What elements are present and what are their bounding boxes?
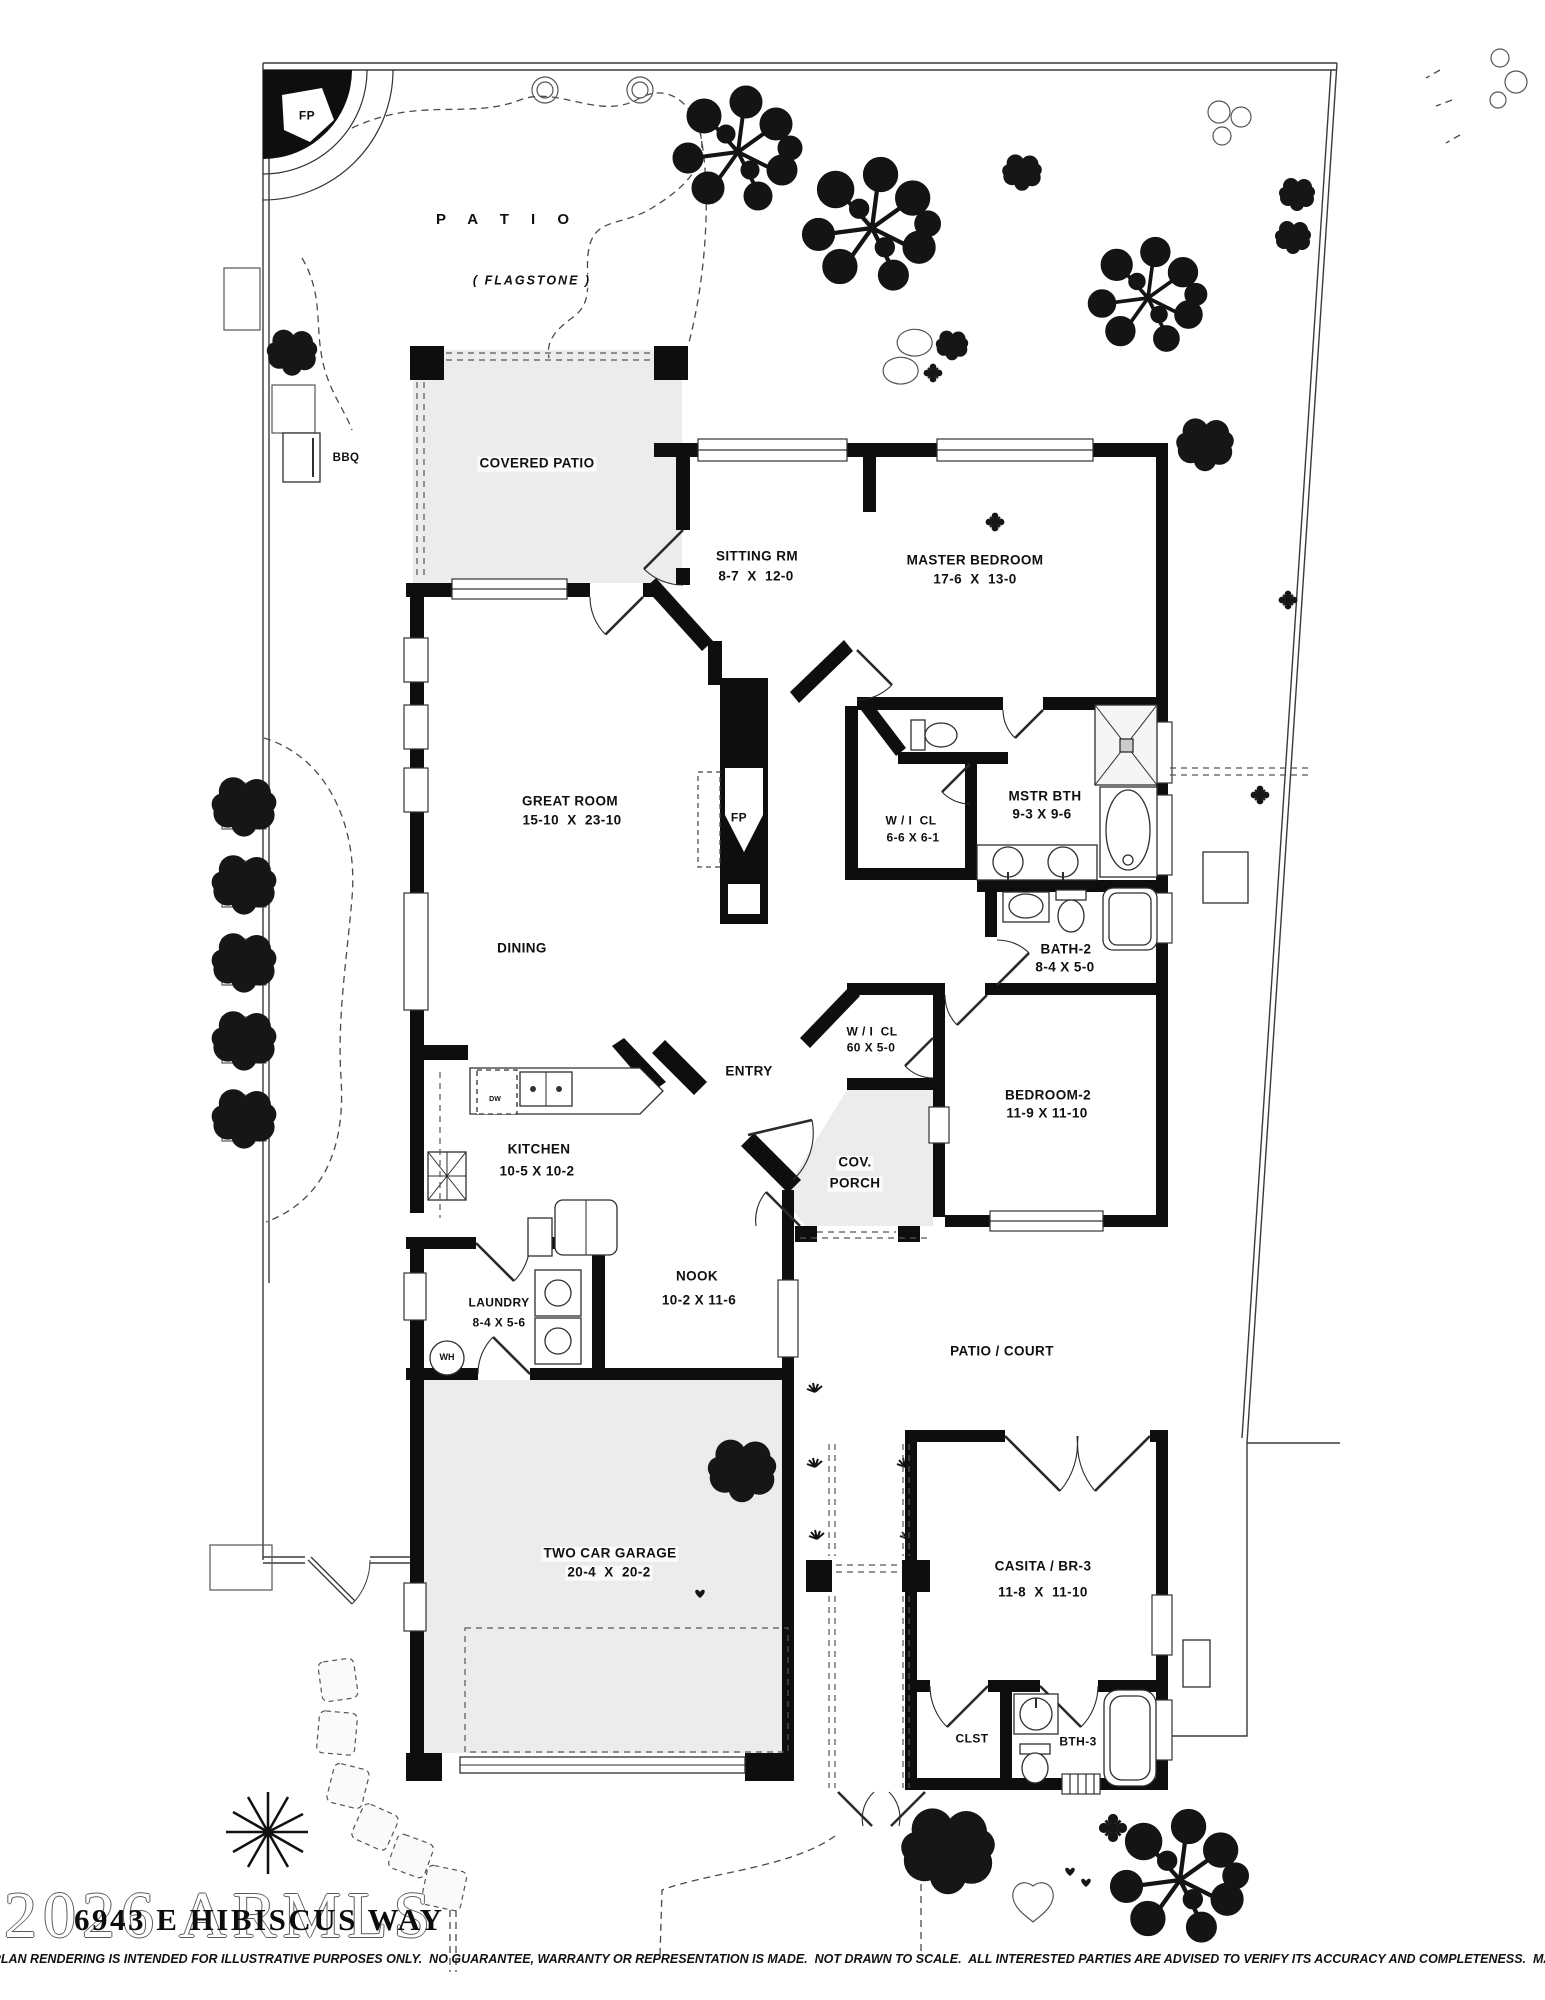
bedroom2-label: BEDROOM-2 <box>1003 1089 1093 1104</box>
patio-court-label: PATIO / COURT <box>948 1345 1056 1360</box>
dining-label: DINING <box>495 942 549 957</box>
bbq-label: BBQ <box>331 452 362 464</box>
kitchen-dims: 10-5 X 10-2 <box>498 1165 577 1180</box>
great-room-dims: 15-10 X 23-10 <box>520 814 623 829</box>
entry-label: ENTRY <box>723 1065 774 1080</box>
sitting-room-dims: 8-7 X 12-0 <box>716 570 795 585</box>
floorplan-page: P A T I O ( FLAGSTONE ) COVERED PATIO SI… <box>0 0 1545 2000</box>
garage-label: TWO CAR GARAGE <box>541 1547 678 1562</box>
master-bath-label: MSTR BTH <box>1007 790 1084 805</box>
covered-patio-label: COVERED PATIO <box>478 457 597 472</box>
nook-label: NOOK <box>674 1270 720 1285</box>
laundry-label: LAUNDRY <box>466 1297 531 1310</box>
outdoor-fireplace-label: FP <box>297 110 317 123</box>
sitting-room-label: SITTING RM <box>714 550 800 565</box>
clst-label: CLST <box>954 1733 991 1746</box>
cov-porch-label-1: COV. <box>836 1156 873 1171</box>
bath2-label: BATH-2 <box>1039 943 1094 958</box>
nook-dims: 10-2 X 11-6 <box>660 1294 738 1309</box>
master-closet-label: W / I CL <box>884 815 939 828</box>
great-room-label: GREAT ROOM <box>520 795 620 810</box>
closet2-label: W / I CL <box>845 1026 900 1039</box>
bedroom2-dims: 11-9 X 11-10 <box>1004 1107 1089 1122</box>
patio-flagstone-label: ( FLAGSTONE ) <box>471 274 593 288</box>
disclaimer-text: FLOORPLAN RENDERING IS INTENDED FOR ILLU… <box>0 1952 1545 1966</box>
casita-dims: 11-8 X 11-10 <box>996 1586 1090 1601</box>
patio-label: P A T I O <box>434 212 580 228</box>
master-bedroom-dims: 17-6 X 13-0 <box>931 573 1018 588</box>
floorplan-drawing <box>0 0 1545 2000</box>
cov-porch-label-2: PORCH <box>828 1177 883 1192</box>
interior-fireplace-label: FP <box>729 812 749 825</box>
master-closet-dims: 6-6 X 6-1 <box>885 832 942 845</box>
casita-label: CASITA / BR-3 <box>993 1560 1094 1575</box>
water-heater-label: WH <box>438 1353 457 1363</box>
outdoor-fireplace <box>263 70 393 200</box>
master-bath-dims: 9-3 X 9-6 <box>1010 808 1073 823</box>
dishwasher-label: DW <box>489 1096 501 1104</box>
master-bedroom-label: MASTER BEDROOM <box>905 554 1046 569</box>
garage-dims: 20-4 X 20-2 <box>565 1566 652 1581</box>
kitchen-label: KITCHEN <box>506 1143 573 1158</box>
agave-plant <box>226 1792 308 1874</box>
closet2-dims: 60 X 5-0 <box>845 1042 898 1055</box>
bath2-dims: 8-4 X 5-0 <box>1033 961 1096 976</box>
property-address: 6943 E HIBISCUS WAY <box>74 1902 445 1938</box>
bth3-label: BTH-3 <box>1057 1736 1098 1749</box>
laundry-dims: 8-4 X 5-6 <box>471 1317 528 1330</box>
